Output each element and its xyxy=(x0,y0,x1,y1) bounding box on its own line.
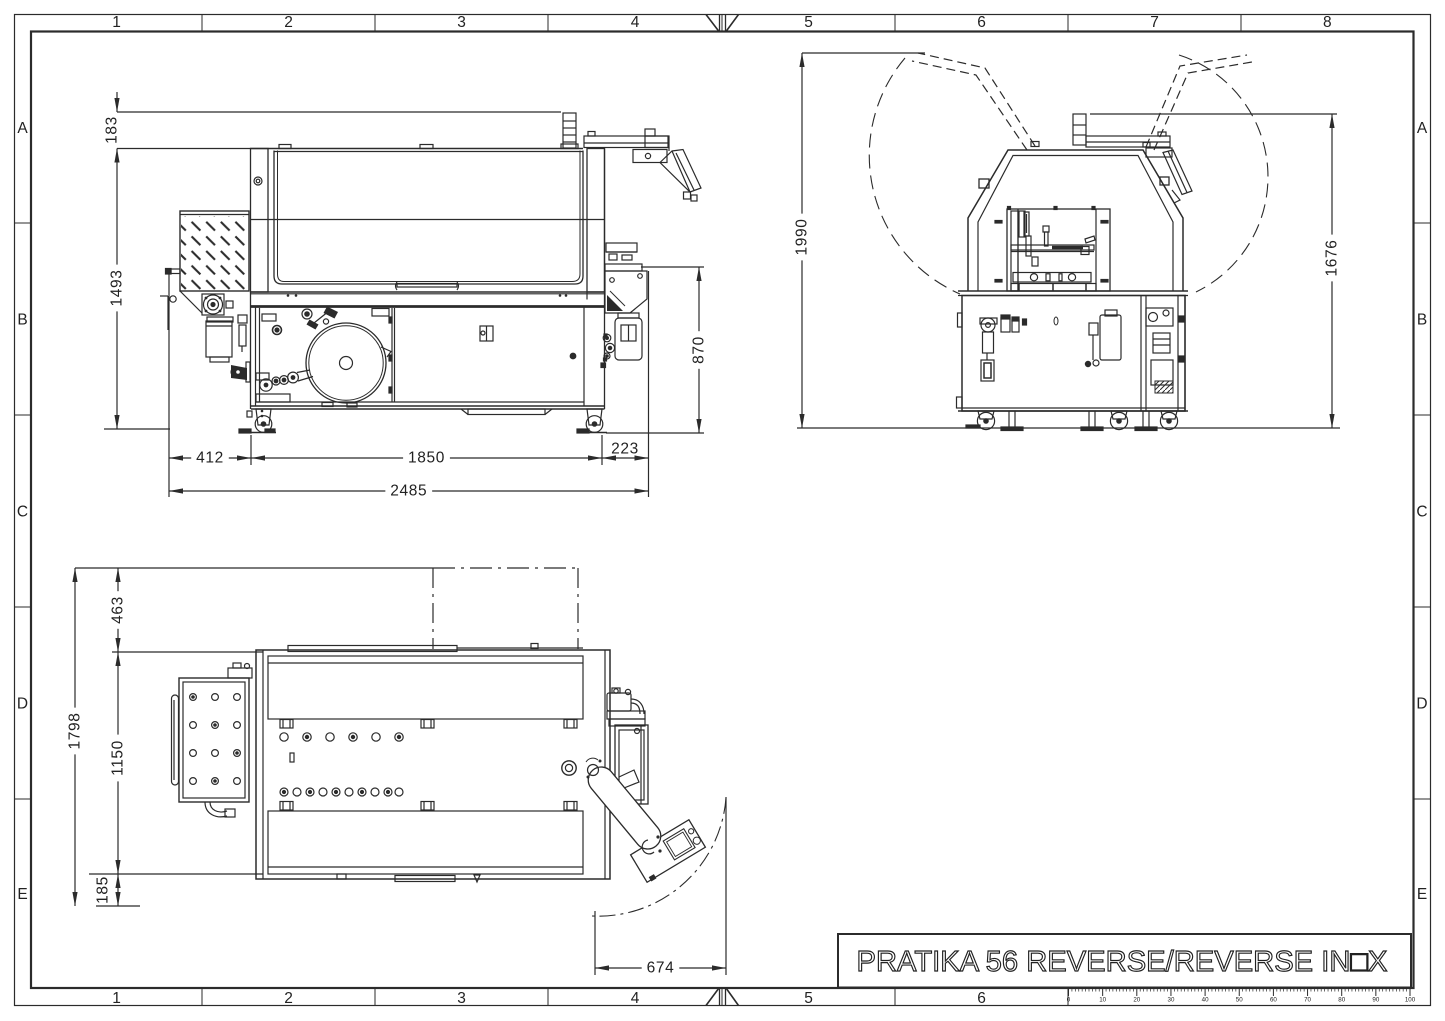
svg-text:70: 70 xyxy=(1304,997,1311,1004)
svg-text:6: 6 xyxy=(977,14,986,31)
svg-text:40: 40 xyxy=(1202,997,1209,1004)
svg-text:2: 2 xyxy=(284,990,293,1007)
svg-text:30: 30 xyxy=(1168,997,1175,1004)
svg-text:B: B xyxy=(1417,312,1427,329)
svg-text:3: 3 xyxy=(457,14,466,31)
svg-text:1676: 1676 xyxy=(1324,240,1341,277)
svg-text:4: 4 xyxy=(631,990,640,1007)
svg-text:1150: 1150 xyxy=(110,740,127,776)
svg-text:50: 50 xyxy=(1236,997,1243,1004)
svg-text:5: 5 xyxy=(804,14,813,31)
svg-text:1850: 1850 xyxy=(408,450,445,467)
svg-text:10: 10 xyxy=(1099,997,1106,1004)
svg-text:0: 0 xyxy=(1067,997,1071,1004)
svg-text:1: 1 xyxy=(112,14,121,31)
svg-text:A: A xyxy=(1417,120,1428,137)
svg-text:PRATIKA 56 REVERSE/REVERSE IN□: PRATIKA 56 REVERSE/REVERSE IN□X xyxy=(857,946,1388,978)
svg-text:223: 223 xyxy=(611,441,639,458)
svg-text:60: 60 xyxy=(1270,997,1277,1004)
svg-text:D: D xyxy=(1416,696,1427,713)
svg-text:870: 870 xyxy=(691,336,708,364)
svg-text:674: 674 xyxy=(647,960,675,977)
svg-text:100: 100 xyxy=(1405,997,1416,1004)
svg-text:6: 6 xyxy=(977,990,986,1007)
svg-text:E: E xyxy=(1417,886,1427,903)
svg-text:5: 5 xyxy=(804,990,813,1007)
svg-text:2485: 2485 xyxy=(390,483,427,500)
svg-text:E: E xyxy=(17,886,27,903)
svg-text:2: 2 xyxy=(284,14,293,31)
svg-text:1990: 1990 xyxy=(794,219,811,256)
svg-text:183: 183 xyxy=(104,116,121,144)
svg-text:412: 412 xyxy=(196,450,224,467)
svg-text:463: 463 xyxy=(110,596,127,624)
svg-text:D: D xyxy=(17,696,28,713)
svg-text:80: 80 xyxy=(1338,997,1345,1004)
svg-text:7: 7 xyxy=(1150,14,1159,31)
svg-text:3: 3 xyxy=(457,990,466,1007)
svg-text:B: B xyxy=(17,312,27,329)
svg-text:90: 90 xyxy=(1372,997,1379,1004)
svg-text:C: C xyxy=(1416,504,1427,521)
svg-text:1: 1 xyxy=(112,990,121,1007)
svg-text:1798: 1798 xyxy=(67,713,84,750)
svg-text:1493: 1493 xyxy=(109,270,126,307)
svg-text:8: 8 xyxy=(1323,14,1332,31)
svg-text:4: 4 xyxy=(631,14,640,31)
svg-text:20: 20 xyxy=(1133,997,1140,1004)
svg-text:185: 185 xyxy=(95,876,112,904)
svg-text:A: A xyxy=(17,120,28,137)
svg-text:C: C xyxy=(17,504,28,521)
